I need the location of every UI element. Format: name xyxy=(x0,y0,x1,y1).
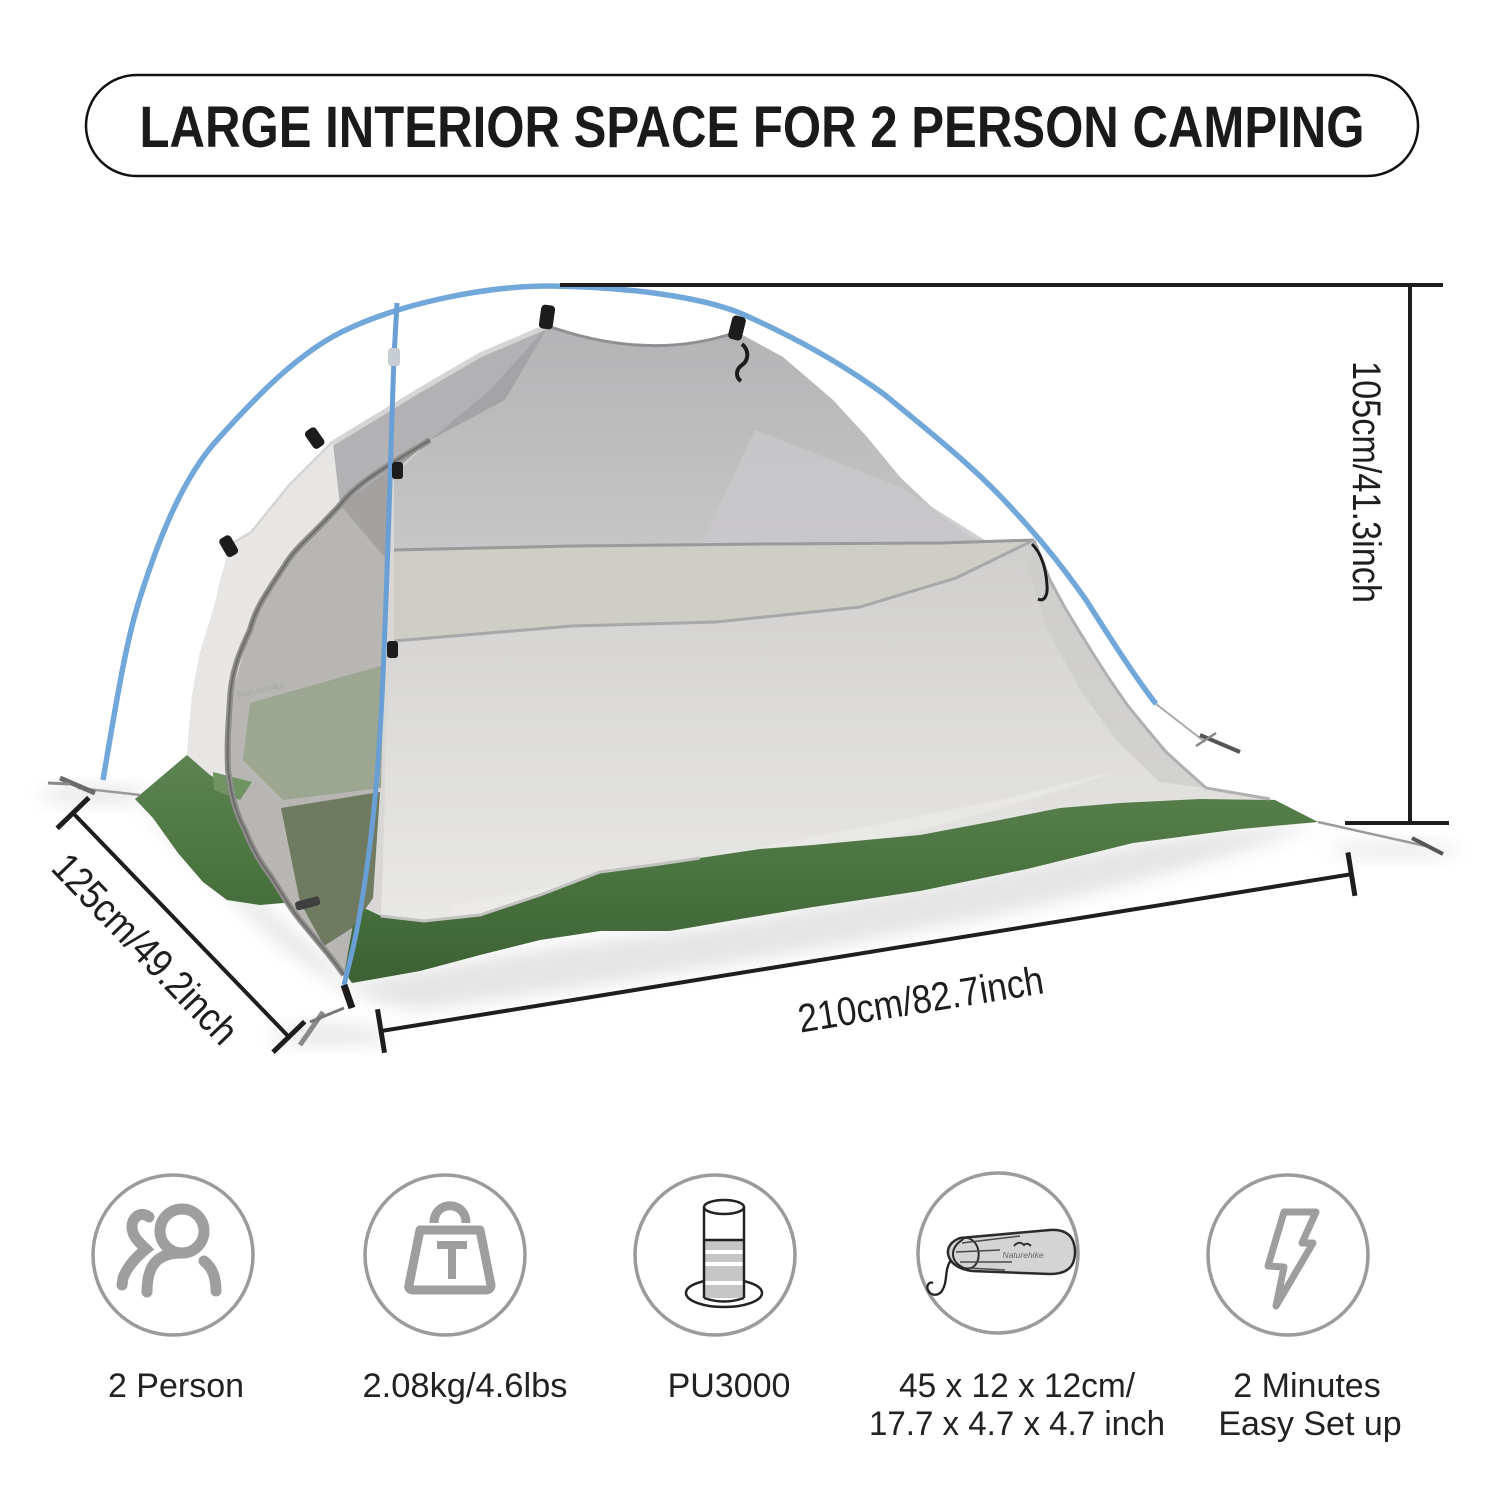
svg-text:PU3000: PU3000 xyxy=(668,1367,791,1405)
svg-text:2 Minutes: 2 Minutes xyxy=(1233,1367,1380,1405)
svg-text:45 x 12 x 12cm/: 45 x 12 x 12cm/ xyxy=(899,1367,1136,1405)
svg-text:Naturehike: Naturehike xyxy=(1002,1250,1043,1260)
svg-text:210cm/82.7inch: 210cm/82.7inch xyxy=(795,959,1047,1042)
svg-text:2.08kg/4.6lbs: 2.08kg/4.6lbs xyxy=(363,1367,568,1405)
svg-text:2 Person: 2 Person xyxy=(108,1367,244,1405)
svg-text:Easy Set up: Easy Set up xyxy=(1218,1405,1401,1443)
svg-text:LARGE INTERIOR SPACE FOR 2 PER: LARGE INTERIOR SPACE FOR 2 PERSON CAMPIN… xyxy=(140,95,1365,160)
svg-text:105cm/41.3inch: 105cm/41.3inch xyxy=(1344,361,1388,603)
svg-text:17.7 x 4.7 x 4.7 inch: 17.7 x 4.7 x 4.7 inch xyxy=(869,1405,1165,1443)
